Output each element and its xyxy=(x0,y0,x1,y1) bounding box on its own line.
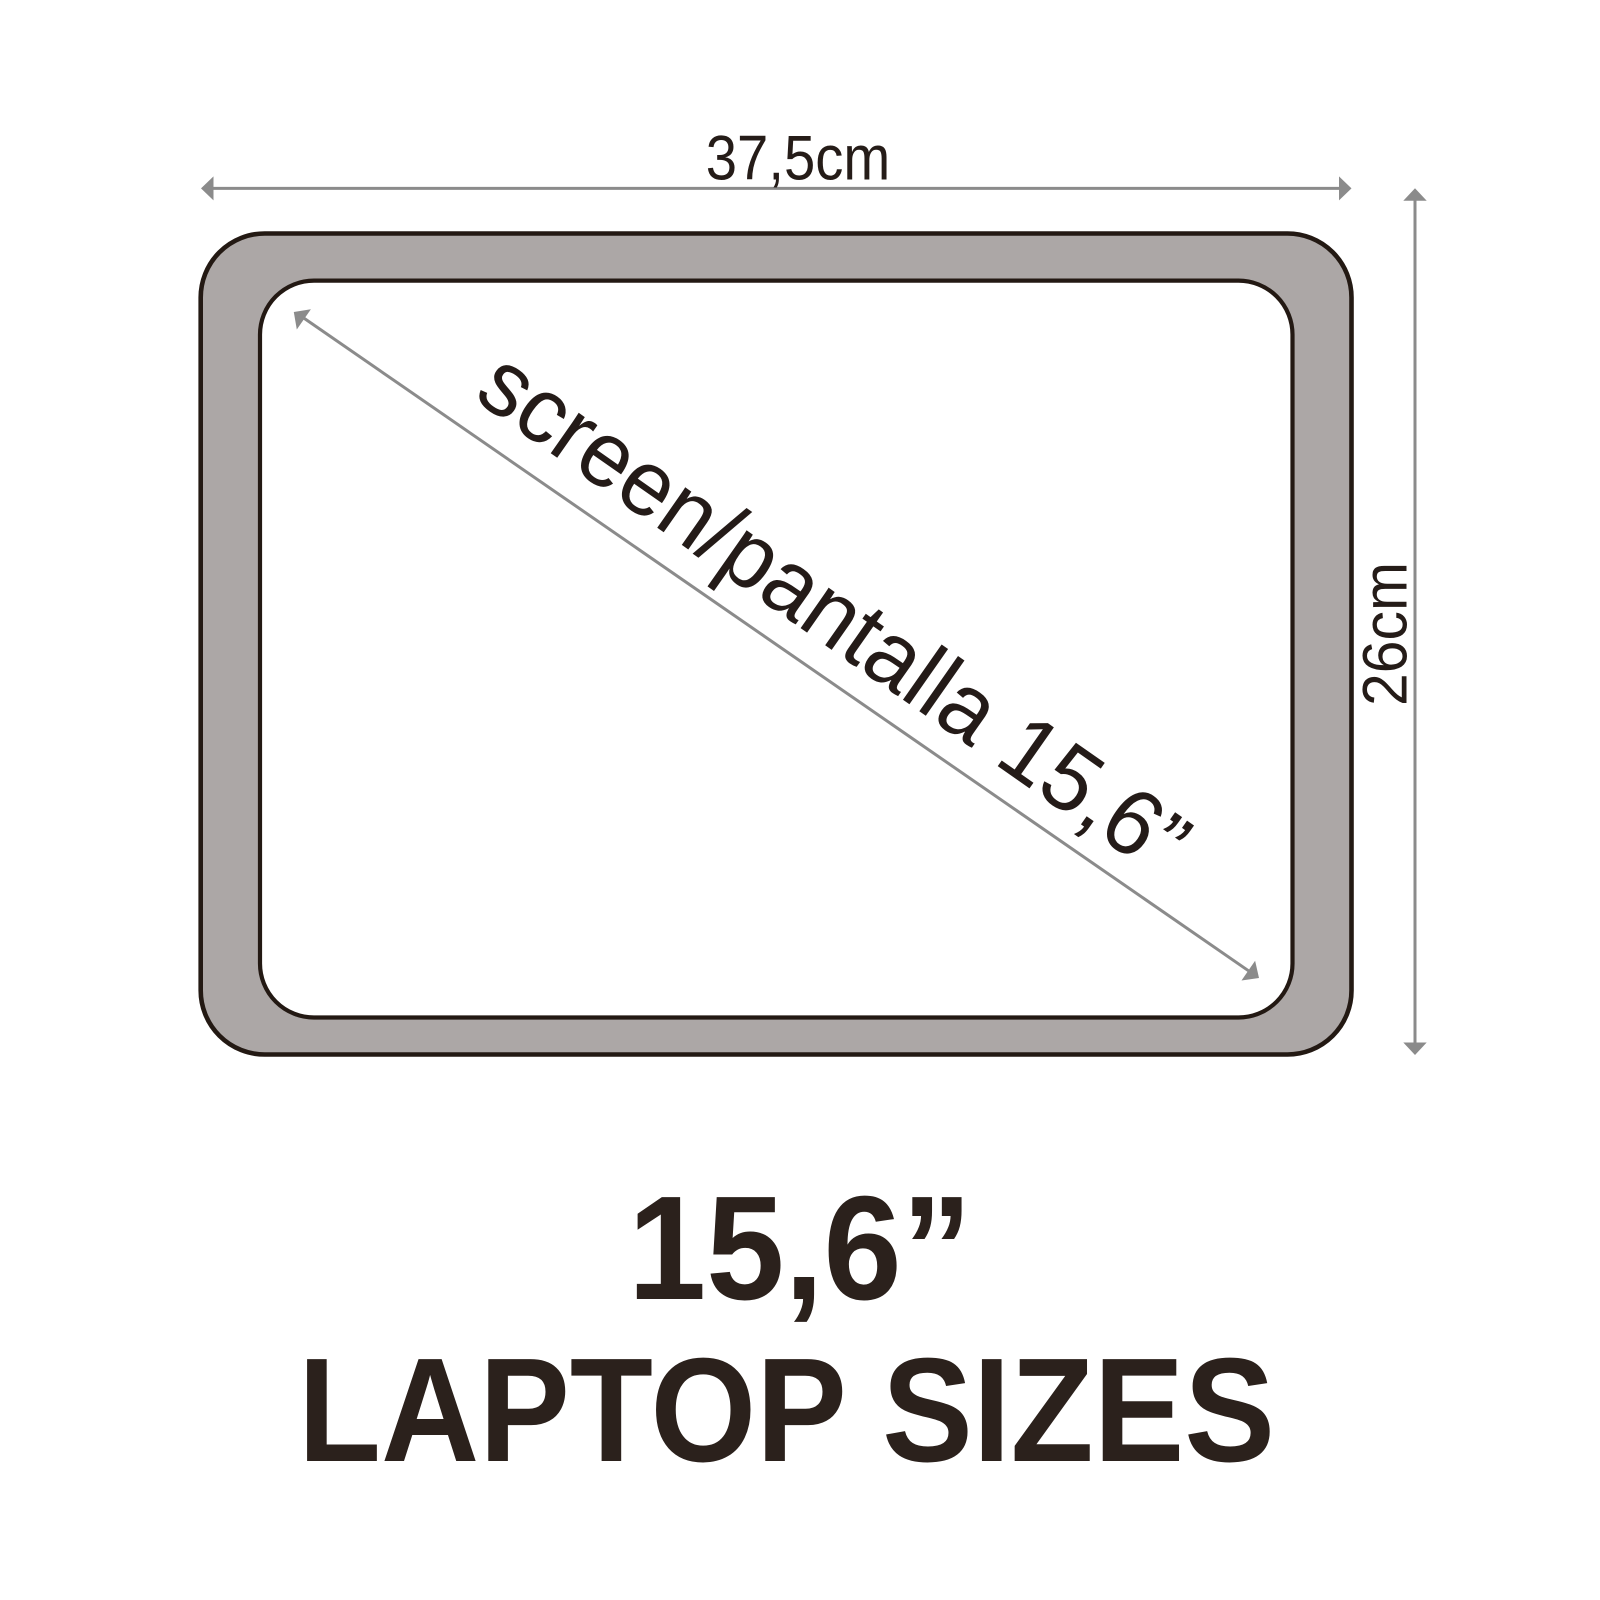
svg-text:LAPTOP SIZES: LAPTOP SIZES xyxy=(298,1328,1275,1493)
svg-text:37,5cm: 37,5cm xyxy=(706,124,891,194)
svg-text:26cm: 26cm xyxy=(1351,562,1421,706)
svg-text:15,6”: 15,6” xyxy=(628,1166,972,1331)
